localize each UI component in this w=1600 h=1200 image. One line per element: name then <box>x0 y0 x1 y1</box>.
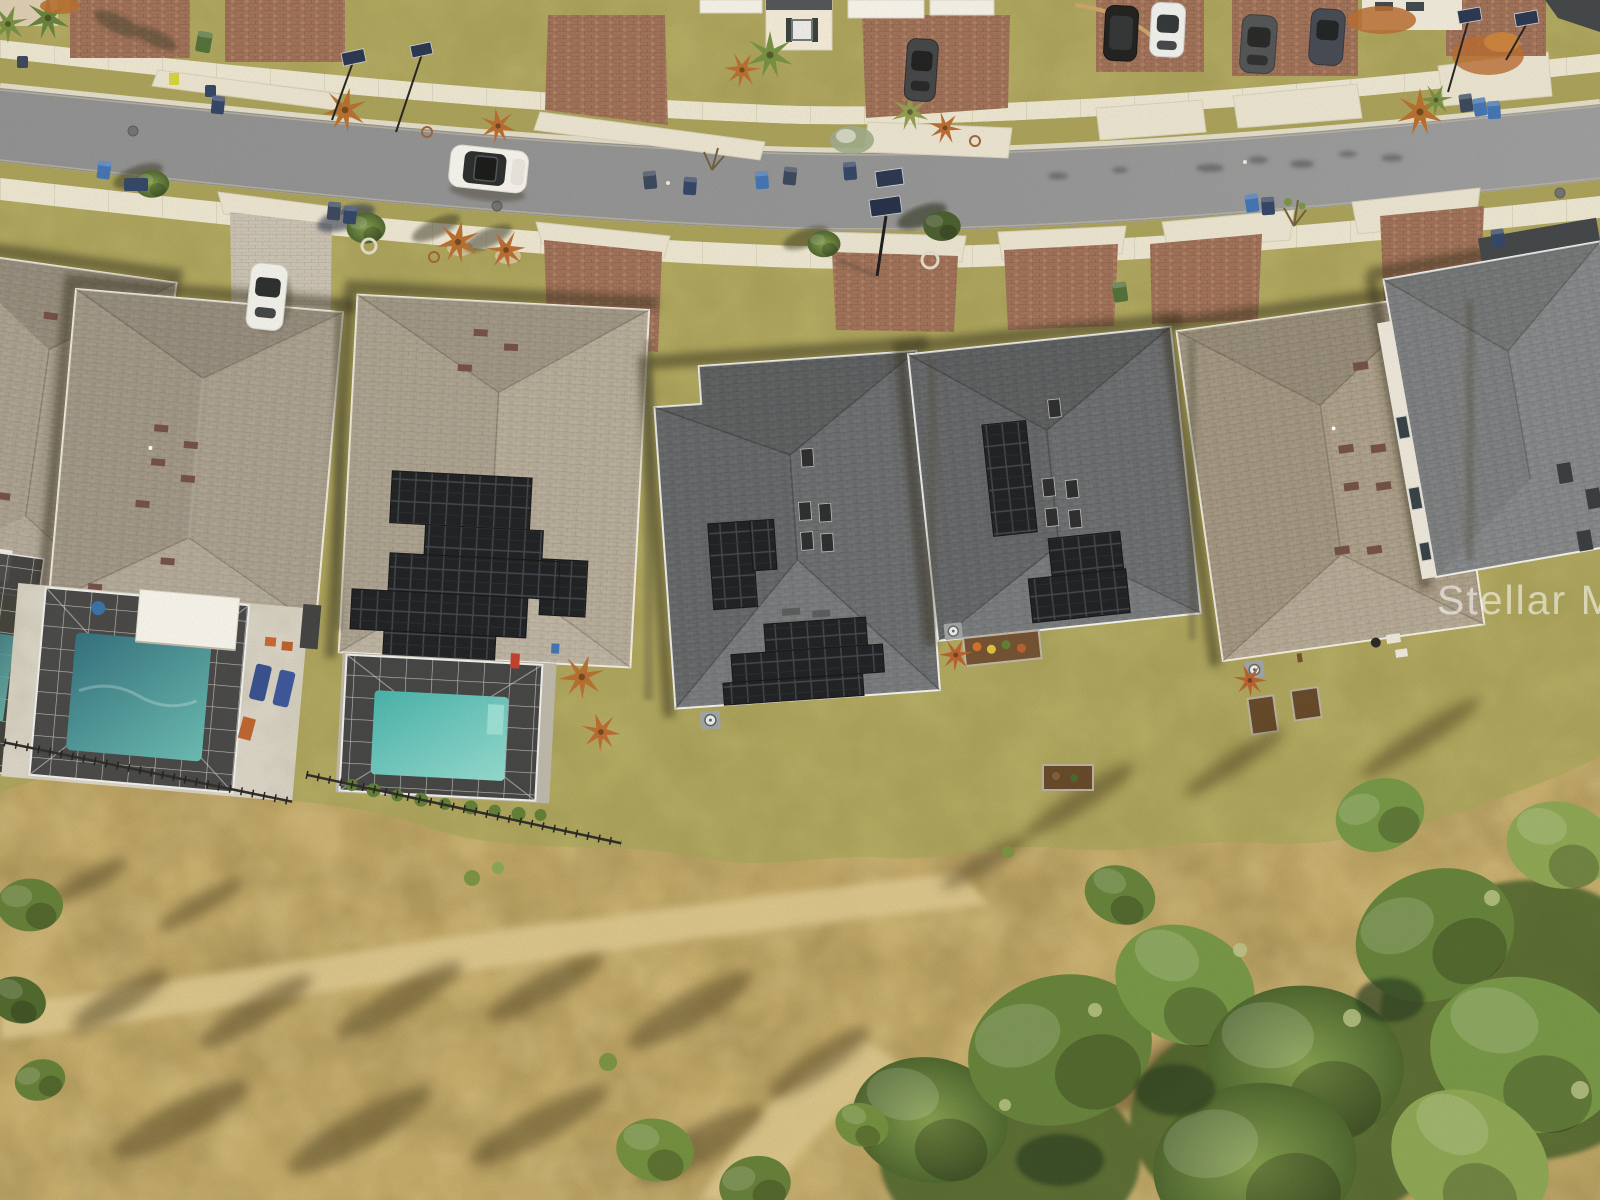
warm-light-overlay <box>0 0 1600 1200</box>
aerial-photograph: Stellar MLS <box>0 0 1600 1200</box>
stellar-mls-watermark: Stellar MLS <box>1437 577 1600 623</box>
aerial-photo-canvas: Stellar MLS <box>0 0 1600 1200</box>
